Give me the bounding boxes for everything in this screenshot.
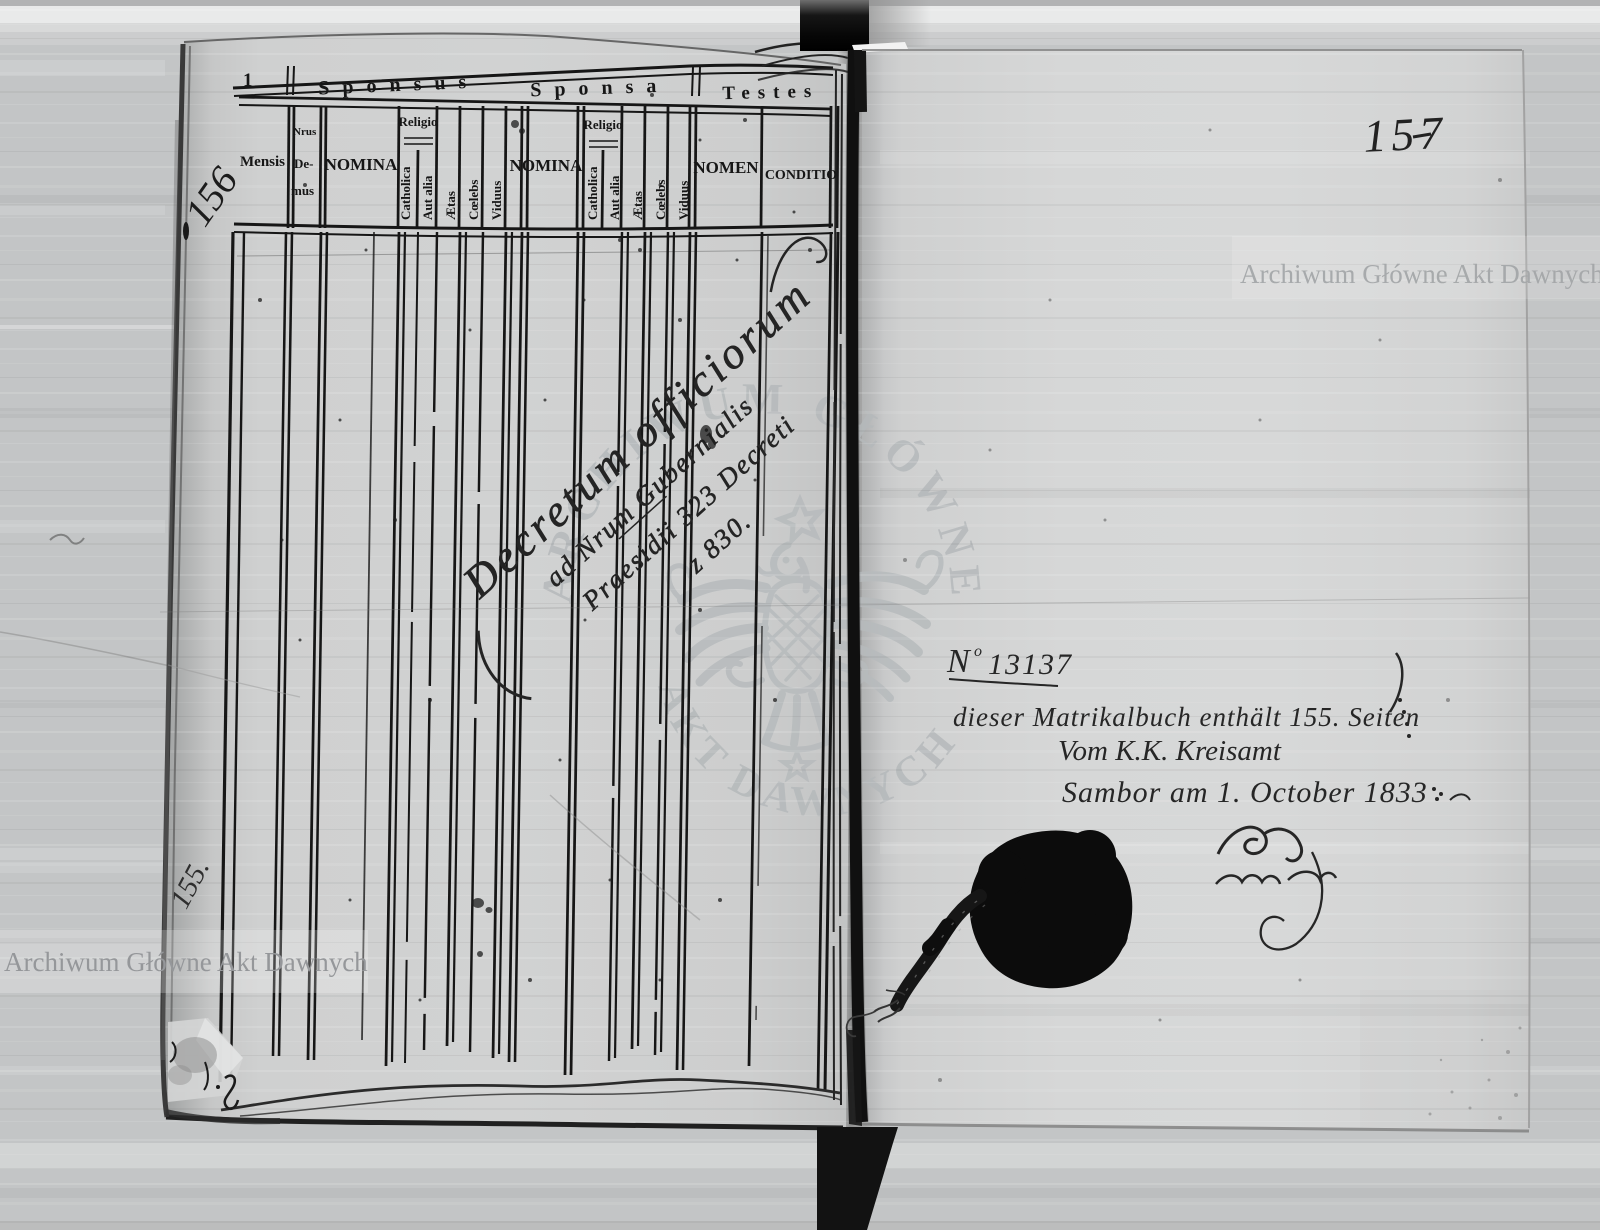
svg-text:Mensis: Mensis [240, 154, 285, 170]
svg-text:De-: De- [294, 156, 314, 171]
svg-text:1: 1 [243, 70, 253, 91]
svg-text:Aut alia: Aut alia [420, 175, 435, 220]
svg-text:CONDITIO: CONDITIO [765, 168, 837, 183]
svg-text:Nrus: Nrus [293, 126, 317, 138]
svg-text:NOMINA: NOMINA [325, 155, 398, 174]
svg-text:Sambor am 1. October 1833: Sambor am 1. October 1833 [1062, 776, 1428, 809]
svg-text:Archiwum Główne Akt Dawnych: Archiwum Główne Akt Dawnych [4, 947, 368, 977]
svg-text:Ætas: Ætas [443, 191, 458, 220]
svg-text:Cœlebs: Cœlebs [466, 180, 481, 220]
svg-text:NOMEN: NOMEN [693, 158, 759, 177]
svg-text:Religio: Religio [399, 114, 438, 129]
svg-text:N: N [946, 643, 972, 680]
svg-text:Ætas: Ætas [630, 191, 645, 220]
svg-text:157: 157 [1362, 107, 1449, 162]
svg-text:Religio: Religio [584, 117, 623, 132]
svg-text:o: o [974, 643, 982, 660]
svg-text:Testes: Testes [722, 81, 819, 105]
svg-text:Catholica: Catholica [585, 166, 600, 220]
svg-text:mus: mus [291, 183, 314, 198]
svg-text:Aut alia: Aut alia [607, 175, 622, 220]
svg-text:Viduus: Viduus [676, 181, 691, 220]
svg-text:Catholica: Catholica [398, 166, 413, 220]
svg-text:Viduus: Viduus [489, 181, 504, 220]
svg-text:Archiwum Główne Akt Dawnych: Archiwum Główne Akt Dawnych [1240, 259, 1600, 289]
svg-text:Vom K.K. Kreisamt: Vom K.K. Kreisamt [1058, 735, 1282, 767]
svg-text:13137: 13137 [988, 648, 1073, 681]
svg-text:dieser Matrikalbuch enthält 15: dieser Matrikalbuch enthält 155. Seiten [953, 702, 1420, 732]
svg-text:NOMINA: NOMINA [510, 156, 583, 175]
